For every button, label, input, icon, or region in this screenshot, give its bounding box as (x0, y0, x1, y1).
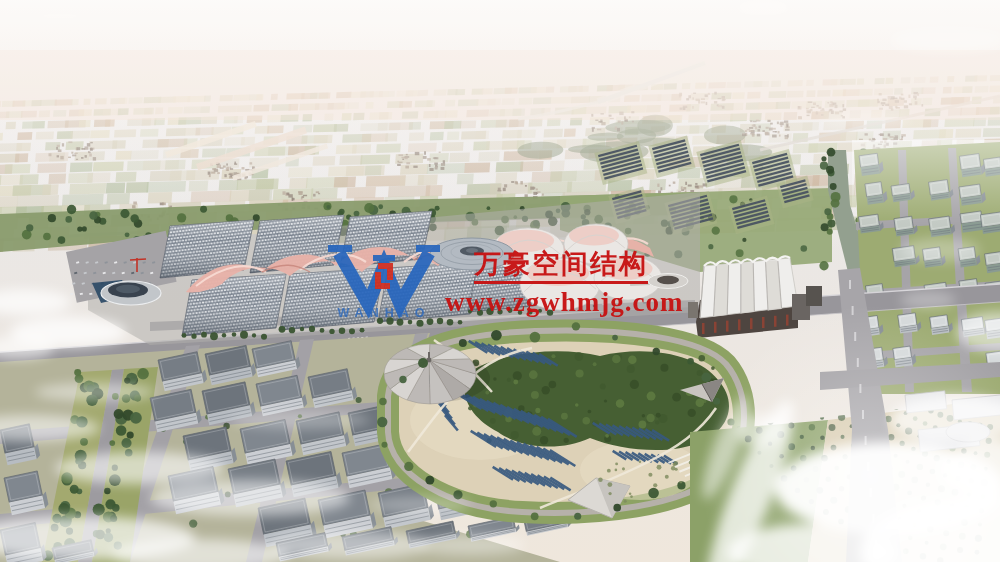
aerial-rendering: WANHAO 万豪空间结构 www.zgwhmjg.com (0, 0, 1000, 562)
top-warm-wash (0, 0, 1000, 120)
scene-canvas (0, 0, 1000, 562)
hub-disc-building (430, 238, 514, 270)
east-city-haze (852, 140, 1000, 225)
central-park (377, 322, 744, 520)
stadium (101, 281, 161, 305)
